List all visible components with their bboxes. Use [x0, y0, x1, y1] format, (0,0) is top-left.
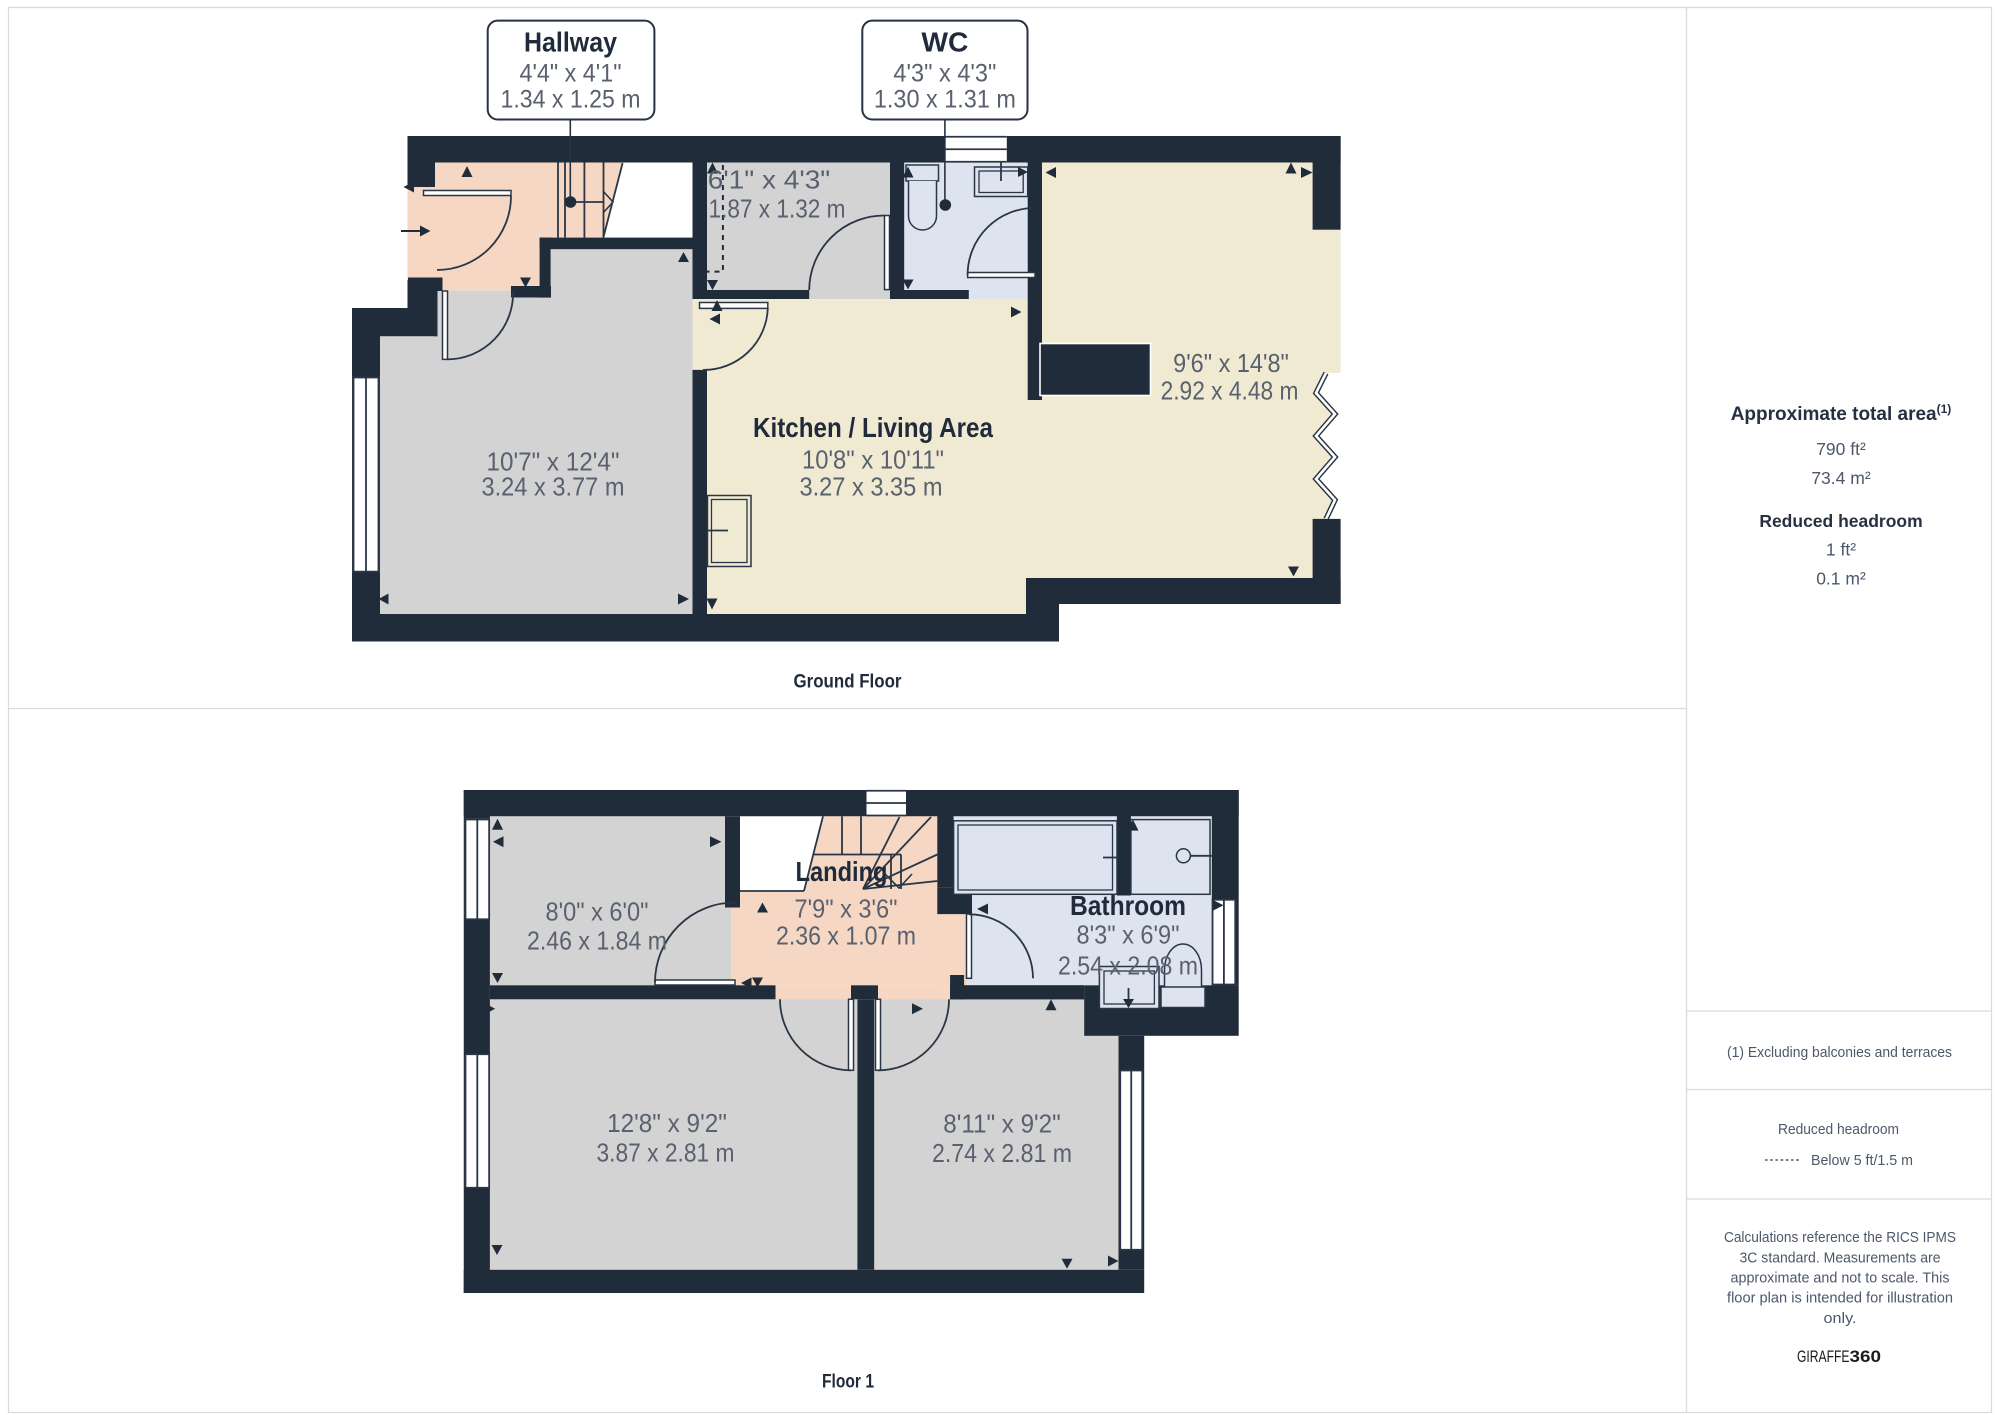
svg-text:Reduced headroom: Reduced headroom: [1778, 1121, 1899, 1138]
svg-text:Below 5 ft/1.5 m: Below 5 ft/1.5 m: [1811, 1152, 1913, 1169]
svg-text:4'4" x 4'1": 4'4" x 4'1": [520, 60, 622, 88]
svg-text:9'6" x 14'8": 9'6" x 14'8": [1173, 348, 1289, 378]
svg-text:8'3" x 6'9": 8'3" x 6'9": [1077, 920, 1180, 950]
svg-text:GIRAFFE: GIRAFFE: [1797, 1348, 1850, 1366]
svg-text:Approximate total area(1): Approximate total area(1): [1731, 402, 1952, 425]
svg-text:(1) Excluding balconies and te: (1) Excluding balconies and terraces: [1727, 1044, 1952, 1061]
svg-text:3.24 x 3.77 m: 3.24 x 3.77 m: [482, 472, 625, 502]
svg-text:7'9" x 3'6": 7'9" x 3'6": [795, 894, 898, 924]
svg-text:2.74 x 2.81 m: 2.74 x 2.81 m: [932, 1138, 1072, 1168]
svg-text:Hallway: Hallway: [524, 27, 617, 58]
svg-text:2.36 x 1.07 m: 2.36 x 1.07 m: [776, 921, 916, 951]
svg-text:approximate and not to scale.: approximate and not to scale. This: [1731, 1270, 1950, 1287]
svg-text:10'8" x 10'11": 10'8" x 10'11": [802, 445, 944, 475]
svg-text:Reduced headroom: Reduced headroom: [1759, 511, 1922, 531]
svg-text:2.46 x 1.84 m: 2.46 x 1.84 m: [527, 926, 667, 956]
svg-text:Bathroom: Bathroom: [1070, 890, 1186, 921]
svg-text:WC: WC: [921, 27, 968, 58]
svg-text:360: 360: [1850, 1348, 1882, 1366]
svg-text:4'3" x 4'3": 4'3" x 4'3": [893, 60, 996, 88]
svg-text:1.30 x 1.31 m: 1.30 x 1.31 m: [874, 86, 1016, 114]
svg-text:2.92 x 4.48 m: 2.92 x 4.48 m: [1161, 376, 1299, 406]
svg-text:73.4 m²: 73.4 m²: [1811, 468, 1870, 488]
svg-text:1.87 x 1.32 m: 1.87 x 1.32 m: [709, 194, 846, 224]
svg-text:8'0" x 6'0": 8'0" x 6'0": [546, 897, 649, 927]
svg-text:Ground Floor: Ground Floor: [794, 672, 903, 693]
svg-text:1.34 x 1.25 m: 1.34 x 1.25 m: [501, 86, 641, 114]
svg-text:3C standard. Measurements are: 3C standard. Measurements are: [1740, 1250, 1941, 1267]
svg-text:Kitchen / Living Area: Kitchen / Living Area: [753, 412, 993, 443]
svg-text:6'1" x 4'3": 6'1" x 4'3": [708, 165, 831, 195]
svg-text:1 ft²: 1 ft²: [1826, 540, 1856, 560]
svg-text:790 ft²: 790 ft²: [1816, 439, 1866, 459]
svg-text:only.: only.: [1824, 1310, 1857, 1327]
svg-text:3.87 x 2.81 m: 3.87 x 2.81 m: [597, 1138, 735, 1168]
svg-text:0.1 m²: 0.1 m²: [1816, 569, 1866, 589]
svg-text:3.27 x 3.35 m: 3.27 x 3.35 m: [800, 472, 943, 502]
svg-text:Calculations reference the RIC: Calculations reference the RICS IPMS: [1724, 1229, 1956, 1246]
svg-text:Landing: Landing: [796, 856, 888, 887]
svg-text:Floor 1: Floor 1: [822, 1372, 874, 1393]
svg-text:floor plan is intended for ill: floor plan is intended for illustration: [1727, 1290, 1953, 1307]
svg-text:2.54 x 2.08 m: 2.54 x 2.08 m: [1058, 951, 1198, 981]
svg-text:12'8" x 9'2": 12'8" x 9'2": [607, 1108, 727, 1138]
svg-text:8'11" x 9'2": 8'11" x 9'2": [943, 1109, 1061, 1139]
